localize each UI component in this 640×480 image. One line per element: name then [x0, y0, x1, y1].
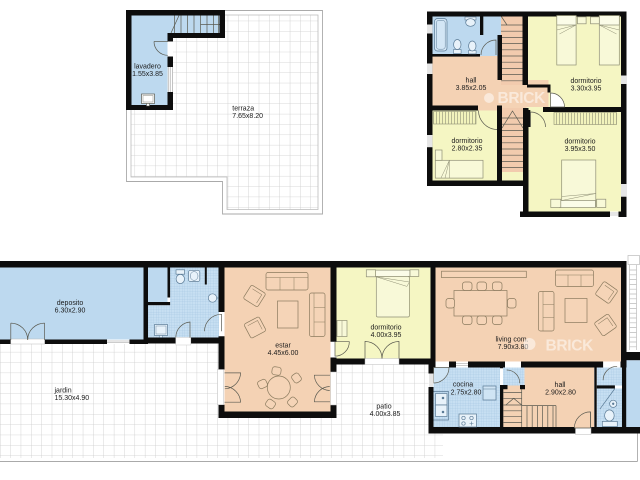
svg-text:7.65x8.20: 7.65x8.20 [232, 113, 263, 120]
svg-text:4.00x3.85: 4.00x3.85 [370, 411, 401, 418]
svg-text:living com.: living com. [495, 337, 528, 344]
svg-text:2.75x2.80: 2.75x2.80 [451, 390, 482, 397]
svg-text:dormitorio: dormitorio [370, 325, 401, 332]
svg-text:hall: hall [555, 382, 566, 389]
svg-text:3.85x2.05: 3.85x2.05 [456, 85, 487, 92]
svg-text:2.80x2.35: 2.80x2.35 [452, 146, 483, 153]
svg-text:terraza: terraza [232, 106, 254, 113]
svg-text:1.55x3.85: 1.55x3.85 [132, 71, 163, 78]
svg-text:15.30x4.90: 15.30x4.90 [55, 395, 90, 402]
svg-text:hall: hall [466, 78, 477, 85]
svg-text:dormitorio: dormitorio [570, 78, 601, 85]
svg-text:dormitorio: dormitorio [564, 139, 595, 146]
svg-text:lavadero: lavadero [134, 64, 161, 71]
svg-text:2.90x2.80: 2.90x2.80 [545, 390, 576, 397]
svg-text:3.30x3.95: 3.30x3.95 [571, 86, 602, 93]
svg-text:BRICK: BRICK [546, 338, 595, 355]
svg-text:3.95x3.50: 3.95x3.50 [565, 146, 596, 153]
svg-text:patio: patio [376, 404, 391, 411]
svg-text:estar: estar [275, 343, 291, 350]
svg-text:BRICK: BRICK [498, 90, 547, 107]
svg-text:4.45x6.00: 4.45x6.00 [268, 350, 299, 357]
svg-text:cocina: cocina [453, 382, 473, 389]
svg-text:jardin: jardin [54, 388, 72, 395]
svg-text:4.00x3.95: 4.00x3.95 [371, 332, 402, 339]
svg-text:deposito: deposito [57, 300, 84, 307]
svg-text:6.30x2.90: 6.30x2.90 [55, 308, 86, 315]
svg-text:dormitorio: dormitorio [451, 138, 482, 145]
